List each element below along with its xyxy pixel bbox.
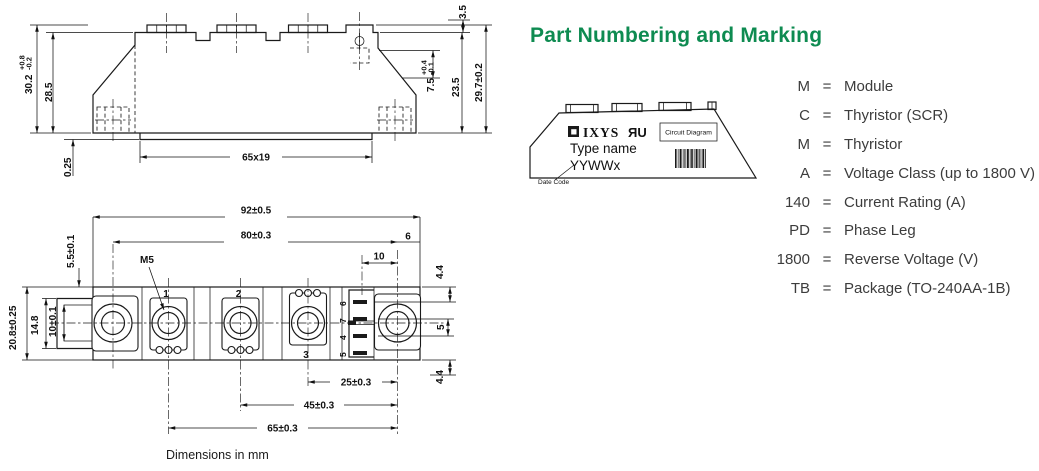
legend-key: C xyxy=(758,107,810,124)
date-code-marking: YYWWx xyxy=(570,158,620,173)
circuit-diagram-box: Circuit Diagram xyxy=(660,123,717,141)
legend-value: Package (TO-240AA-1B) xyxy=(844,280,1035,297)
dim-ear-height: 14.8 xyxy=(30,315,41,335)
legend-value: Module xyxy=(844,78,1035,95)
side-view-drawing: 30.2 +0.8 -0.2 28.5 0.25 65x19 3.5 7.5 +… xyxy=(0,0,520,200)
legend-value: Thyristor xyxy=(844,136,1035,153)
package-outline xyxy=(530,102,756,178)
dim-pin-bot-gap: 4.4 xyxy=(435,370,446,384)
part-number-legend: M=Module C=Thyristor (SCR) M=Thyristor A… xyxy=(758,72,1035,303)
circuit-diagram-label: Circuit Diagram xyxy=(665,130,712,137)
dim-base-offset: 0.25 xyxy=(63,157,74,177)
hidden-edges xyxy=(97,45,411,133)
date-code-label: Date Code xyxy=(538,179,569,186)
dim-gate-height-tol-minus: -0.1 xyxy=(427,62,436,75)
legend-key: M xyxy=(758,136,810,153)
legend-key: PD xyxy=(758,222,810,239)
module-body-outline xyxy=(93,25,416,140)
equals-sign: = xyxy=(810,222,844,239)
dim-base-size: 65x19 xyxy=(242,153,270,164)
equals-sign: = xyxy=(810,251,844,268)
legend-value: Thyristor (SCR) xyxy=(844,107,1035,124)
equals-sign: = xyxy=(810,78,844,95)
dimensions-note: Dimensions in mm xyxy=(166,448,269,462)
dim-slot-width: 10±0.1 xyxy=(48,306,59,337)
baseplate xyxy=(140,133,372,140)
ixys-logo: IXYS xyxy=(568,125,619,140)
type-name-marking: Type name xyxy=(570,141,637,156)
pin-5-label: 5 xyxy=(338,352,348,357)
dim-height-total: 30.2 xyxy=(24,74,35,94)
legend-value: Reverse Voltage (V) xyxy=(844,251,1035,268)
dim-height-body: 28.5 xyxy=(44,82,55,102)
pin-6-label: 6 xyxy=(338,301,348,306)
legend-key: 140 xyxy=(758,194,810,211)
section-title: Part Numbering and Marking xyxy=(530,24,822,48)
equals-sign: = xyxy=(810,280,844,297)
equals-sign: = xyxy=(810,136,844,153)
date-code-callout: Date Code xyxy=(538,165,574,186)
equals-sign: = xyxy=(810,194,844,211)
dim-pin-offset: 10 xyxy=(373,252,385,263)
mounting-hole-left xyxy=(92,296,138,351)
dim-pitch-65: 65±0.3 xyxy=(267,424,298,435)
dim-pitch-45: 45±0.3 xyxy=(304,401,335,412)
equals-sign: = xyxy=(810,107,844,124)
legend-key: A xyxy=(758,165,810,182)
dim-height-inner: 23.5 xyxy=(451,77,462,97)
centerlines xyxy=(95,12,413,141)
dim-slot-offset: 5.5±0.1 xyxy=(66,234,77,268)
dim-gate-height: 7.5 xyxy=(426,78,437,92)
brand-name: IXYS xyxy=(583,125,619,140)
ul-recognized-mark-icon: ЯU xyxy=(628,125,647,140)
legend-value: Phase Leg xyxy=(844,222,1035,239)
dim-thread: M5 xyxy=(140,255,154,266)
dim-width-total: 92±0.5 xyxy=(241,206,272,217)
dim-edge-offset: 6 xyxy=(405,232,411,243)
legend-value: Current Rating (A) xyxy=(844,194,1035,211)
legend-key: TB xyxy=(758,280,810,297)
dim-depth-total: 20.8±0.25 xyxy=(8,305,19,350)
pin-4-label: 4 xyxy=(338,335,348,340)
legend-key: 1800 xyxy=(758,251,810,268)
equals-sign: = xyxy=(810,165,844,182)
package-marking-drawing: IXYS ЯU Circuit Diagram Type name YYWWx … xyxy=(528,95,773,195)
legend-key: M xyxy=(758,78,810,95)
pin-7-label: 7 xyxy=(338,318,348,323)
legend-value: Voltage Class (up to 1800 V) xyxy=(844,165,1035,182)
top-view-drawing: 1 2 3 6 7 4 5 xyxy=(0,200,520,471)
dim-hole-pitch: 80±0.3 xyxy=(241,231,272,242)
dim-height-overall: 29.7±0.2 xyxy=(474,63,485,102)
dim-pin-top-gap: 4.4 xyxy=(435,265,446,279)
barcode-icon xyxy=(675,149,706,168)
dim-height-total-tol-minus: -0.2 xyxy=(25,57,34,70)
dimension-labels: 30.2 +0.8 -0.2 28.5 0.25 65x19 3.5 7.5 +… xyxy=(18,5,486,177)
dim-pin-height: 3.5 xyxy=(458,5,469,19)
dim-pitch-25: 25±0.3 xyxy=(341,378,372,389)
dim-pin-pitch: 5 xyxy=(436,324,447,330)
